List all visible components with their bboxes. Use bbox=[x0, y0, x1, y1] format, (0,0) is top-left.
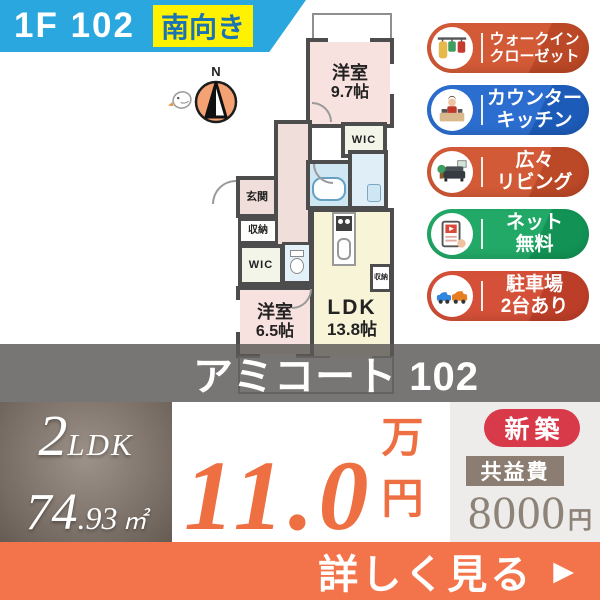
feature-badge-counter-kitchen: カウンター キッチン bbox=[427, 85, 589, 135]
layout-type: LDK bbox=[67, 427, 133, 463]
room-label: LDK bbox=[327, 296, 376, 320]
room-label: 玄関 bbox=[246, 191, 268, 204]
door-arc-entrance bbox=[212, 180, 236, 204]
details-button-label: 詳しく見る bbox=[318, 542, 533, 600]
rent-price: 11.0 万円 bbox=[176, 402, 448, 542]
badge-line: 2台あり bbox=[501, 296, 569, 318]
new-construction-badge: 新築 bbox=[484, 409, 580, 447]
arrow-right-icon: ▶ bbox=[553, 556, 574, 587]
details-button[interactable]: 詳しく見る ▶ bbox=[0, 542, 600, 600]
bird-doodle-icon bbox=[166, 90, 193, 113]
layout-row: 2 LDK bbox=[38, 402, 133, 469]
badge-line: カウンター bbox=[487, 88, 582, 110]
window bbox=[390, 64, 396, 94]
badge-text: カウンター キッチン bbox=[486, 88, 589, 132]
layout-number: 2 bbox=[38, 402, 67, 469]
badge-line: ネット bbox=[506, 212, 563, 234]
feature-badge-parking: 駐車場 2台あり bbox=[427, 271, 589, 321]
room-genkan: 玄関 bbox=[236, 176, 278, 218]
badge-line: 無料 bbox=[515, 234, 553, 256]
header-banner: 1F 102 南向き bbox=[0, 0, 306, 52]
compass-north-label: N bbox=[211, 64, 220, 79]
room-size: 6.5帖 bbox=[256, 323, 294, 341]
area-row: 74 .93 ㎡ bbox=[26, 483, 147, 542]
badge-line: リビング bbox=[496, 172, 572, 194]
sink-icon bbox=[337, 238, 351, 260]
listing-card[interactable]: 1F 102 南向き N 洋室 9.7帖 WIC 玄関 収納 bbox=[0, 0, 600, 600]
new-badge-label: 新築 bbox=[504, 410, 564, 446]
room-size: 13.8帖 bbox=[327, 320, 377, 340]
fee-amount: 8000 円 bbox=[468, 486, 598, 540]
badge-separator bbox=[481, 157, 483, 187]
kitchen-counter bbox=[332, 212, 356, 266]
fee-label-box: 共益費 bbox=[466, 456, 564, 486]
area-unit: ㎡ bbox=[123, 501, 147, 536]
fee-value: 8000 bbox=[468, 486, 566, 540]
layout-area-box: 2 LDK 74 .93 ㎡ bbox=[0, 402, 172, 542]
feature-badge-living: 広々 リビング bbox=[427, 147, 589, 197]
badge-text: ウォークイン クローゼット bbox=[486, 31, 589, 66]
building-name-band: アミコート 102 bbox=[0, 344, 600, 402]
rent-value: 11.0 bbox=[184, 450, 373, 542]
internet-icon bbox=[431, 213, 473, 255]
compass-icon: N bbox=[166, 64, 250, 130]
badge-text: 広々 リビング bbox=[486, 150, 589, 194]
feature-badge-walk-in-closet: ウォークイン クローゼット bbox=[427, 23, 589, 73]
room-label: WIC bbox=[352, 134, 376, 147]
area-int: 74 bbox=[26, 483, 78, 542]
rent-unit: 万円 bbox=[381, 404, 448, 526]
room-label: 洋室 bbox=[257, 302, 293, 323]
room-wic-left: WIC bbox=[238, 244, 284, 286]
room-label: 収納 bbox=[374, 274, 388, 282]
building-name: アミコート 102 bbox=[193, 344, 479, 402]
room-shuno: 収納 bbox=[238, 218, 278, 244]
room-label: 洋室 bbox=[332, 63, 368, 84]
badge-separator bbox=[481, 95, 483, 125]
fee-label: 共益費 bbox=[481, 456, 550, 486]
counter-kitchen-icon bbox=[431, 89, 473, 131]
area-dec: .93 bbox=[78, 500, 118, 537]
badge-line: キッチン bbox=[496, 110, 572, 132]
living-icon bbox=[431, 151, 473, 193]
stove-icon bbox=[336, 216, 352, 231]
unit-number: 1F 102 bbox=[14, 6, 135, 46]
window bbox=[234, 300, 240, 332]
room-label: 収納 bbox=[248, 225, 268, 237]
room-label: WIC bbox=[249, 259, 273, 272]
badge-separator bbox=[481, 219, 483, 249]
room-washroom bbox=[348, 150, 388, 210]
badge-line: 広々 bbox=[515, 150, 553, 172]
parking-icon bbox=[431, 275, 473, 317]
room-toilet bbox=[282, 242, 312, 284]
window bbox=[328, 36, 370, 42]
facing-badge: 南向き bbox=[153, 5, 253, 47]
walk-in-closet-icon bbox=[431, 27, 473, 69]
badge-separator bbox=[481, 281, 483, 311]
badge-line: ウォークイン bbox=[489, 31, 579, 48]
badge-line: クローゼット bbox=[489, 48, 579, 65]
badge-text: 駐車場 2台あり bbox=[486, 274, 589, 318]
fee-panel: 新築 共益費 8000 円 bbox=[450, 402, 600, 542]
fee-unit: 円 bbox=[568, 500, 592, 535]
badge-text: ネット 無料 bbox=[486, 212, 589, 256]
washbasin-icon bbox=[367, 184, 381, 202]
room-size: 9.7帖 bbox=[331, 84, 369, 102]
storage-nook: 収納 bbox=[370, 264, 392, 292]
toilet-icon bbox=[289, 250, 305, 276]
feature-badge-internet: ネット 無料 bbox=[427, 209, 589, 259]
badge-line: 駐車場 bbox=[506, 274, 563, 296]
badge-separator bbox=[481, 33, 483, 63]
